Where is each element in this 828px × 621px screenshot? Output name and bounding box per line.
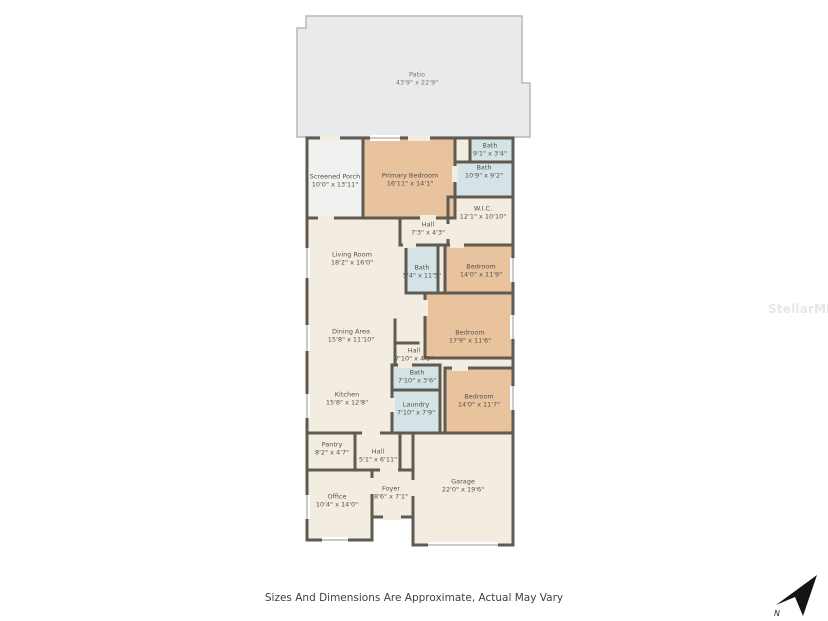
floorplan-canvas: N Patio 43'9" x 22'9" Screened Porch 10'…	[0, 0, 828, 621]
patio-outline	[297, 16, 530, 137]
stellarmls-watermark: StellarMLS	[768, 302, 828, 316]
disclaimer-text: Sizes And Dimensions Are Approximate, Ac…	[0, 592, 828, 604]
floorplan-drawing: N	[0, 0, 828, 621]
north-label: N	[774, 609, 780, 618]
